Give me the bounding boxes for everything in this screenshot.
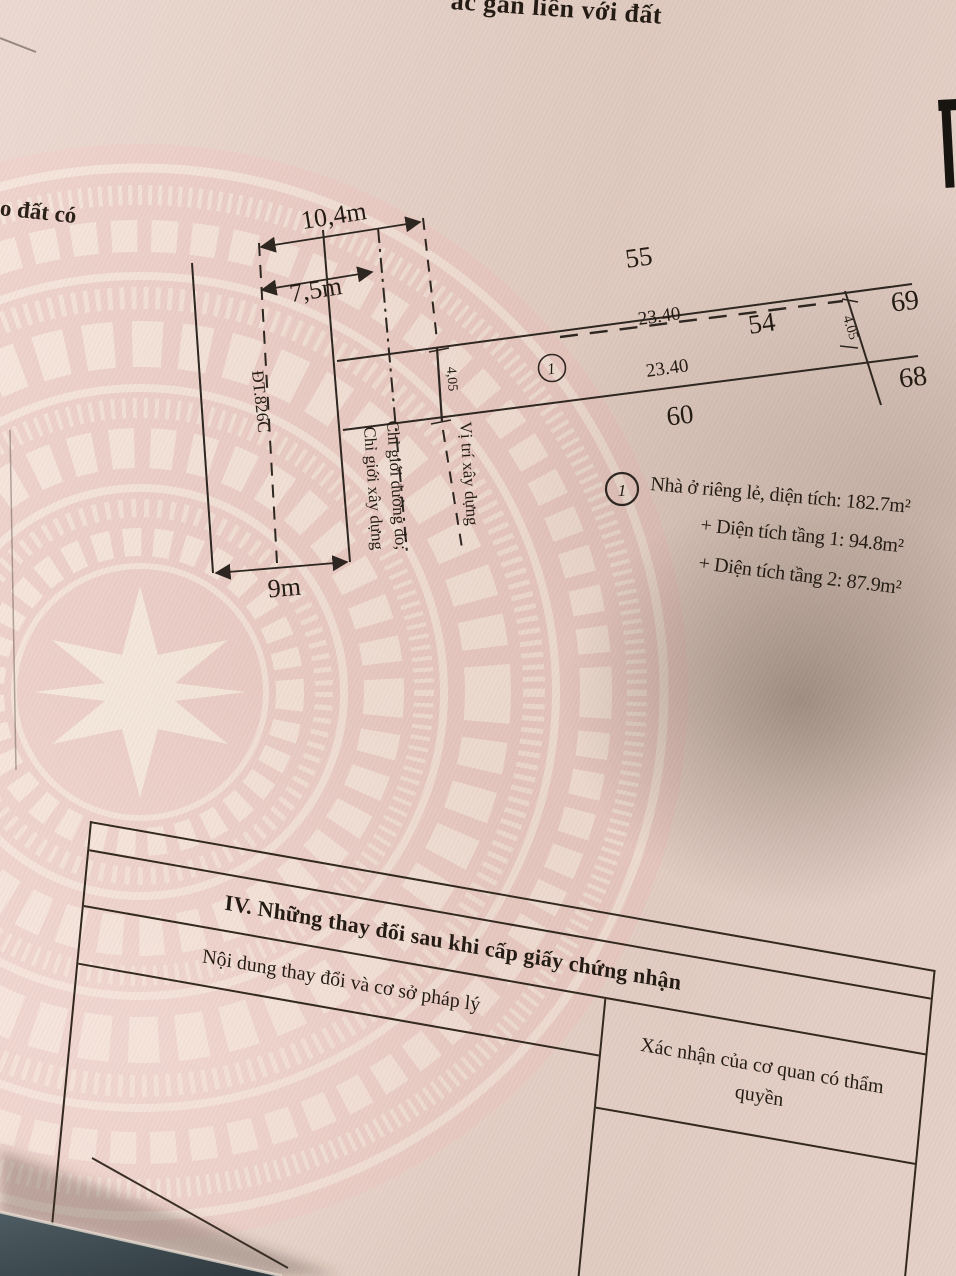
road-outer-edge-line <box>192 263 213 573</box>
road-left-dashed-line <box>259 243 277 563</box>
dim-label-9m: 9m <box>266 572 302 604</box>
drum-sun-star <box>34 586 246 798</box>
construction-line-lower-dashed <box>443 430 462 548</box>
adjacent-parcel-bottom: 60 <box>665 399 695 432</box>
construction-boundary-label: Chỉ giới xây dựng <box>360 426 388 551</box>
dimension-line-10-4 <box>261 222 420 247</box>
road-name-label: ĐT.826C <box>248 369 273 433</box>
dim-label-10-4m: 10,4m <box>299 196 368 235</box>
construction-line-upper-dashed <box>423 218 437 340</box>
red-boundary-label: Chỉ giới đường đỏ; <box>383 420 411 551</box>
legend-line-2: + Diện tích tầng 1: 94.8m² <box>699 514 904 557</box>
parcel-right-edge <box>845 291 881 405</box>
parcel-top-edge-dashed-overlay <box>560 301 843 337</box>
frontage-left-label: 4,05 <box>443 366 460 391</box>
legend-line-3: + Diện tích tầng 2: 87.9m² <box>697 552 902 599</box>
tick-right-bottom <box>840 346 858 348</box>
dim-label-7-5m: 7,5m <box>287 271 344 308</box>
house-marker-number: 1 <box>546 361 556 379</box>
tick-right-top <box>842 299 858 302</box>
legend-marker-number: 1 <box>618 481 627 500</box>
boundary-point-bottom-right: 68 <box>897 360 929 394</box>
construction-position-label: Vị trí xây dựng <box>456 421 482 527</box>
certificate-page-photo: ác gắn liền với đất ao đất có <box>0 0 956 1276</box>
edge-length-top: 23.40 <box>637 303 682 330</box>
top-edge-text-fragment: ác gắn liền với đất <box>450 0 871 45</box>
house-marker-circle <box>539 355 566 382</box>
changes-after-issuance-table: IV. Những thay đổi sau khi cấp giấy chứn… <box>45 821 936 1276</box>
adjacent-parcel-top: 55 <box>623 240 654 273</box>
tick-left-bottom <box>431 420 451 424</box>
red-boundary-dashdot-line <box>378 228 407 553</box>
page-fold-line-top <box>0 38 36 52</box>
frontage-right-label: 4.05 <box>839 314 861 342</box>
cut-off-letter-right-edge <box>938 99 956 188</box>
parcel-number: 54 <box>746 306 777 340</box>
parcel-front-edge <box>437 348 442 422</box>
legend-line-1: Nhà ở riêng lẻ, diện tích: 182.7m² <box>650 473 912 518</box>
page-fold-line-left <box>10 430 16 770</box>
tick-left-top <box>429 348 449 352</box>
parcel-bottom-edge <box>343 356 918 430</box>
dimension-line-7-5 <box>262 272 372 290</box>
parcel-top-edge <box>337 284 912 361</box>
legend-marker-circle <box>606 473 638 505</box>
edge-length-bottom: 23.40 <box>645 355 690 382</box>
boundary-point-top-right: 69 <box>889 284 921 318</box>
dimension-line-9 <box>216 562 347 573</box>
road-right-edge-line <box>323 230 350 562</box>
left-edge-text-fragment: ao đất có <box>0 194 78 229</box>
